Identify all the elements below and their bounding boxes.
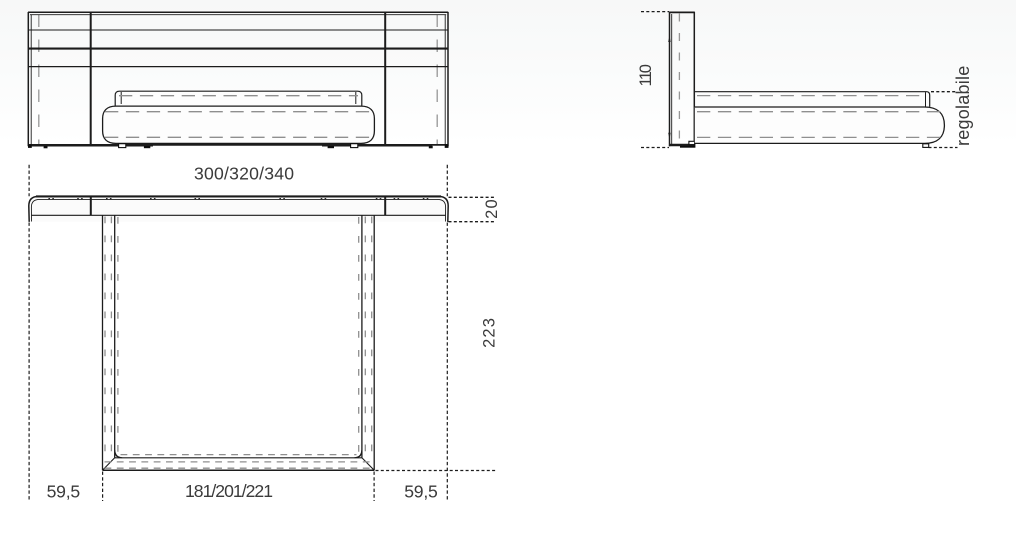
svg-text:regolabile: regolabile <box>953 66 973 146</box>
svg-text:59,5: 59,5 <box>47 481 81 501</box>
svg-text:181/201/221: 181/201/221 <box>185 481 273 501</box>
svg-text:223: 223 <box>480 318 498 348</box>
svg-text:300/320/340: 300/320/340 <box>194 163 294 183</box>
svg-text:110: 110 <box>637 64 655 86</box>
svg-text:20: 20 <box>483 199 501 219</box>
svg-text:59,5: 59,5 <box>404 481 438 501</box>
